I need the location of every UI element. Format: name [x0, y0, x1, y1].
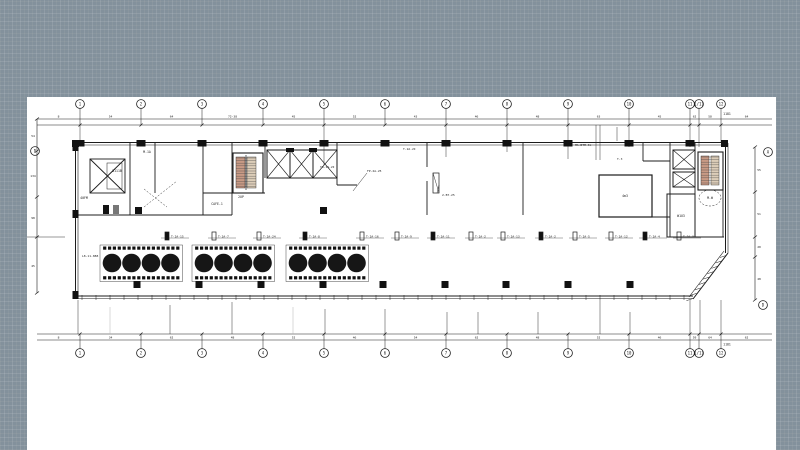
chair	[234, 276, 237, 279]
chair	[132, 247, 135, 250]
room-label: M.W	[707, 196, 713, 200]
chair	[234, 247, 237, 250]
chair	[249, 276, 252, 279]
chamfer-hatch	[686, 256, 726, 301]
overall-dimension: 1181	[723, 112, 731, 116]
chair	[210, 276, 213, 279]
chair	[299, 247, 302, 250]
chair	[118, 247, 121, 250]
dim-number: 8	[58, 336, 60, 340]
chair	[215, 247, 218, 250]
grid-bubble-label: D	[762, 303, 765, 308]
chair	[268, 276, 271, 279]
fan-coil-unit	[395, 232, 399, 240]
elevator-bank-right	[673, 150, 695, 187]
column	[320, 207, 327, 214]
chair	[167, 276, 170, 279]
chair	[343, 247, 346, 250]
annotations: TU-1A-2IFP-2A-25T-2A-2I2-BT-25MA-BTM-4kT…	[82, 143, 623, 258]
grid-bubble-label: 3	[201, 351, 204, 356]
dimension-numbers: 885434646272-384845525246435446624848635…	[30, 112, 761, 347]
chair	[167, 247, 170, 250]
chair	[205, 276, 208, 279]
dim-number: 48	[536, 115, 540, 119]
chair	[254, 276, 257, 279]
chair	[103, 276, 106, 279]
round-table	[103, 254, 122, 273]
grid-bubble-label: 7	[445, 351, 448, 356]
chair	[142, 276, 145, 279]
dim-number: 52	[597, 336, 601, 340]
round-table	[161, 254, 180, 273]
drawing-canvas[interactable]: 112233445566778899101011111/111/111212DA…	[27, 97, 776, 450]
annotation: TU-1A-2I	[320, 165, 335, 169]
room-label: B111B	[112, 169, 122, 173]
cad-viewer-background: 112233445566778899101011111/111/111212DA…	[0, 0, 800, 450]
chair	[314, 247, 317, 250]
banquet-tables	[100, 245, 369, 282]
chair	[357, 276, 360, 279]
fan-coil-unit	[677, 232, 681, 240]
chair	[108, 276, 111, 279]
chair	[224, 276, 227, 279]
grid-bubble-label: 9	[567, 351, 570, 356]
utility-blocks	[103, 205, 119, 214]
chair	[210, 247, 213, 250]
chair	[304, 247, 307, 250]
chair	[333, 276, 336, 279]
grid-bubble-label: 8	[506, 102, 509, 107]
chair	[171, 276, 174, 279]
chair	[348, 247, 351, 250]
grid-bubble-label: 12	[719, 102, 724, 107]
grid-bubble-label: 5	[323, 351, 326, 356]
dim-number: 48	[536, 336, 540, 340]
dim-number: 54	[414, 336, 418, 340]
column	[320, 140, 329, 147]
dim-number: 64	[745, 115, 749, 119]
chair	[205, 247, 208, 250]
column	[503, 140, 512, 147]
dim-number: 62	[170, 336, 174, 340]
chair	[338, 276, 341, 279]
chair	[224, 247, 227, 250]
dim-number: 55	[757, 168, 761, 172]
chair	[103, 247, 106, 250]
chair	[132, 276, 135, 279]
chair	[176, 276, 179, 279]
chair	[318, 276, 321, 279]
chair	[362, 247, 365, 250]
column	[625, 140, 634, 147]
chair	[128, 247, 131, 250]
round-table	[142, 254, 161, 273]
chair	[220, 276, 223, 279]
chair	[176, 247, 179, 250]
fan-coil-unit	[360, 232, 364, 240]
dim-number: 52	[292, 336, 296, 340]
round-table	[308, 254, 327, 273]
round-table	[289, 254, 308, 273]
dim-number: 62	[475, 336, 479, 340]
column	[627, 281, 634, 288]
chair	[343, 276, 346, 279]
interior-walls	[75, 143, 724, 237]
chair	[314, 276, 317, 279]
annotation: T-2A-2I	[403, 147, 416, 151]
chair	[289, 276, 292, 279]
chair	[304, 276, 307, 279]
column	[564, 140, 573, 147]
chair	[289, 247, 292, 250]
chair	[328, 247, 331, 250]
chair	[263, 276, 266, 279]
chair	[162, 247, 165, 250]
chair	[362, 276, 365, 279]
column	[442, 140, 451, 147]
fan-coil-unit	[643, 232, 647, 240]
floor-plan-svg: 112233445566778899101011111/111/111212DA…	[27, 97, 776, 450]
chair	[268, 247, 271, 250]
structural-columns	[72, 140, 728, 299]
column	[442, 281, 449, 288]
column	[137, 140, 146, 147]
annotation: MA-BTM-4k	[575, 143, 591, 147]
column	[134, 281, 141, 288]
chair	[142, 247, 145, 250]
dim-number: 8	[58, 115, 60, 119]
chair	[157, 247, 160, 250]
round-table	[214, 254, 233, 273]
dim-number: 46	[353, 336, 357, 340]
grid-bubble-label: 3	[201, 102, 204, 107]
dim-number: 58	[708, 115, 712, 119]
room-label: W1U3	[677, 214, 685, 218]
chair	[128, 276, 131, 279]
dim-number: 46	[475, 115, 479, 119]
column	[380, 281, 387, 288]
chair	[195, 247, 198, 250]
dim-number: 48	[231, 336, 235, 340]
column	[196, 281, 203, 288]
chair	[113, 276, 116, 279]
chair	[259, 247, 262, 250]
dim-number: 64	[170, 115, 174, 119]
grid-bubble-label: 1/11	[694, 102, 704, 107]
dim-number: 64	[708, 336, 712, 340]
dim-number: 59	[693, 336, 697, 340]
left-stair	[233, 153, 263, 193]
dim-number: 34	[109, 336, 113, 340]
chair	[309, 247, 312, 250]
grid-bubble-label: 11	[688, 102, 693, 107]
fan-coil-unit	[165, 232, 169, 240]
chair	[108, 247, 111, 250]
fan-coil-unit	[501, 232, 505, 240]
dim-number: 52	[353, 115, 357, 119]
round-table	[234, 254, 253, 273]
grid-bubble-label: 5	[323, 102, 326, 107]
chair	[259, 276, 262, 279]
extension-lines	[78, 125, 721, 334]
chair	[254, 247, 257, 250]
chair	[162, 276, 165, 279]
column	[135, 207, 142, 214]
column	[565, 281, 572, 288]
chair	[318, 247, 321, 250]
chair	[123, 247, 126, 250]
dim-number: 62	[745, 336, 749, 340]
dim-number: 98	[31, 216, 35, 220]
room-label: M-1A	[143, 150, 151, 154]
grid-bubble-label: 4	[262, 351, 265, 356]
round-table	[328, 254, 347, 273]
dim-number: 72-38	[228, 115, 237, 119]
chair	[229, 247, 232, 250]
chair	[152, 276, 155, 279]
annotation: L8-11-888	[82, 254, 98, 258]
chair	[229, 276, 232, 279]
chair	[239, 247, 242, 250]
grid-bubble-label: 2	[140, 351, 143, 356]
grid-bubble-label: 8	[506, 351, 509, 356]
chair	[137, 247, 140, 250]
chair	[294, 276, 297, 279]
chair	[244, 276, 247, 279]
building-outline	[75, 143, 728, 300]
dim-number: 45	[292, 115, 296, 119]
round-table	[195, 254, 214, 273]
fan-coil-unit	[257, 232, 261, 240]
chair	[357, 247, 360, 250]
grid-bubble-label: 10	[627, 351, 632, 356]
fan-coil-unit	[431, 232, 435, 240]
room-label: 2UP	[238, 195, 244, 199]
chair	[328, 276, 331, 279]
dim-number: 51	[757, 212, 761, 216]
grid-bubble-label: 4	[262, 102, 265, 107]
grid-bubble-label: 1	[79, 351, 82, 356]
column	[258, 281, 265, 288]
chair	[147, 276, 150, 279]
fan-coil-units-row: T-2A-15T-2A-7T-2A-24T-2A-8T-2A-16T-2A-9T…	[161, 232, 701, 240]
grid-bubble-label: 10	[627, 102, 632, 107]
grid-bubble-label: 2	[140, 102, 143, 107]
annotation: T-3	[617, 157, 623, 161]
grid-bubble-label: 6	[384, 351, 387, 356]
chair	[147, 247, 150, 250]
fan-coil-unit	[573, 232, 577, 240]
dim-number: 54	[31, 134, 35, 138]
overall-dimension: 1181	[723, 343, 731, 347]
chair	[171, 247, 174, 250]
dim-number: 62	[693, 115, 697, 119]
annotation: 2-BT-25	[442, 193, 455, 197]
dim-number: 46	[658, 336, 662, 340]
grid-bubbles: 112233445566778899101011111/111/111212DA…	[31, 100, 773, 358]
fan-coil-unit	[303, 232, 307, 240]
chair	[157, 276, 160, 279]
grid-bubble-label: 1	[79, 102, 82, 107]
round-table	[122, 254, 141, 273]
column	[320, 281, 327, 288]
column	[503, 281, 510, 288]
grid-bubble-label: 9	[567, 102, 570, 107]
round-table	[253, 254, 272, 273]
round-table	[347, 254, 366, 273]
chair	[299, 276, 302, 279]
chair	[353, 247, 356, 250]
chair	[215, 276, 218, 279]
chair	[338, 247, 341, 250]
fan-coil-unit	[469, 232, 473, 240]
grid-bubble-label: 12	[719, 351, 724, 356]
column	[259, 140, 268, 147]
table-group	[192, 245, 275, 282]
dim-number: 48	[757, 277, 761, 281]
annotation: FP-2A-25	[367, 169, 382, 173]
chair	[249, 247, 252, 250]
dim-number: 20	[757, 245, 761, 249]
grid-bubble-label: 1/11	[694, 351, 704, 356]
grid-bubble-label: 6	[384, 102, 387, 107]
chair	[113, 247, 116, 250]
chair	[200, 247, 203, 250]
column	[686, 140, 695, 147]
room-label: CAFE-1	[211, 202, 223, 206]
dim-number: 63	[597, 115, 601, 119]
chair	[294, 247, 297, 250]
chair	[152, 247, 155, 250]
table-group	[286, 245, 369, 282]
dim-number: 45	[658, 115, 662, 119]
table-group	[100, 245, 183, 282]
dim-number: 134	[30, 174, 36, 178]
chair	[239, 276, 242, 279]
chair	[244, 247, 247, 250]
grid-bubble-label: 11	[688, 351, 693, 356]
chair	[323, 247, 326, 250]
chair	[323, 276, 326, 279]
chair	[309, 276, 312, 279]
chair	[353, 276, 356, 279]
room-label: 4m3	[622, 194, 628, 198]
chair	[263, 247, 266, 250]
column	[381, 140, 390, 147]
dim-number: 45	[31, 264, 35, 268]
chair	[200, 276, 203, 279]
fan-coil-unit	[212, 232, 216, 240]
chair	[118, 276, 121, 279]
chair	[220, 247, 223, 250]
fan-coil-unit	[539, 232, 543, 240]
fan-coil-unit	[609, 232, 613, 240]
chair	[137, 276, 140, 279]
chair	[333, 247, 336, 250]
elevator-bank-left	[267, 148, 337, 178]
dim-number: 54	[109, 115, 113, 119]
chair	[123, 276, 126, 279]
grid-bubble-label: 7	[445, 102, 448, 107]
column	[198, 140, 207, 147]
dim-number: 43	[414, 115, 418, 119]
grid-bubble-label: A	[767, 150, 770, 155]
chair	[348, 276, 351, 279]
chair	[195, 276, 198, 279]
upper-left-shaft	[90, 159, 125, 193]
room-label: 40FM	[80, 196, 88, 200]
